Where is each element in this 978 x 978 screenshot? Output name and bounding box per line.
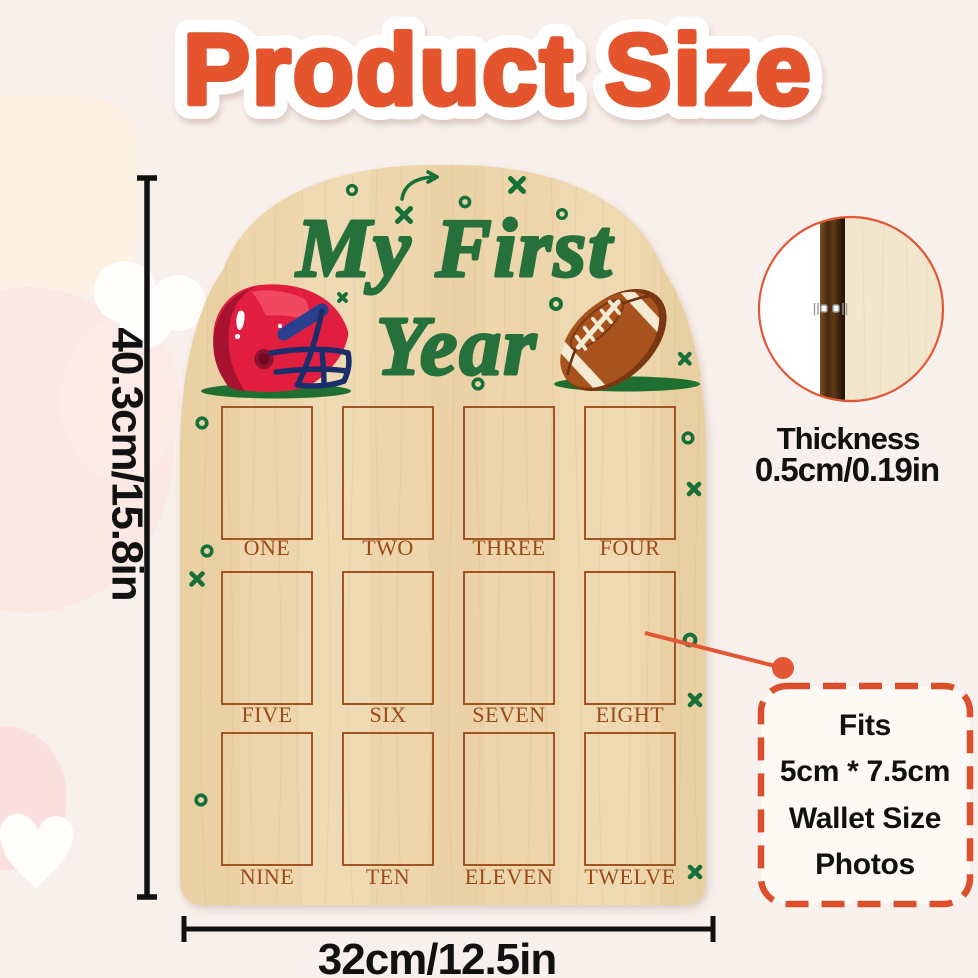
svg-text:My First: My First — [294, 202, 614, 295]
svg-text:TWELVE: TWELVE — [584, 864, 675, 889]
svg-text:NINE: NINE — [240, 864, 295, 889]
svg-text:Photos: Photos — [815, 848, 915, 881]
svg-text:TEN: TEN — [366, 864, 410, 889]
svg-text:ONE: ONE — [244, 535, 291, 560]
svg-text:0.5cm/0.19in: 0.5cm/0.19in — [755, 451, 939, 488]
svg-text:ELEVEN: ELEVEN — [465, 864, 554, 889]
svg-text:FOUR: FOUR — [600, 535, 661, 560]
svg-text:5cm * 7.5cm: 5cm * 7.5cm — [780, 755, 950, 788]
svg-text:THREE: THREE — [472, 535, 545, 560]
svg-text:SEVEN: SEVEN — [472, 702, 545, 727]
svg-text:Fits: Fits — [839, 709, 891, 742]
svg-text:FIVE: FIVE — [242, 702, 293, 727]
svg-text:40.3cm/15.8in: 40.3cm/15.8in — [102, 327, 151, 600]
svg-text:32cm/12.5in: 32cm/12.5in — [318, 935, 557, 978]
svg-text:Year: Year — [376, 300, 538, 393]
svg-text:Product Size: Product Size — [183, 14, 813, 126]
svg-text:SIX: SIX — [370, 702, 407, 727]
svg-text:EIGHT: EIGHT — [596, 702, 665, 727]
svg-text:Wallet Size: Wallet Size — [789, 802, 941, 835]
svg-text:TWO: TWO — [362, 535, 414, 560]
